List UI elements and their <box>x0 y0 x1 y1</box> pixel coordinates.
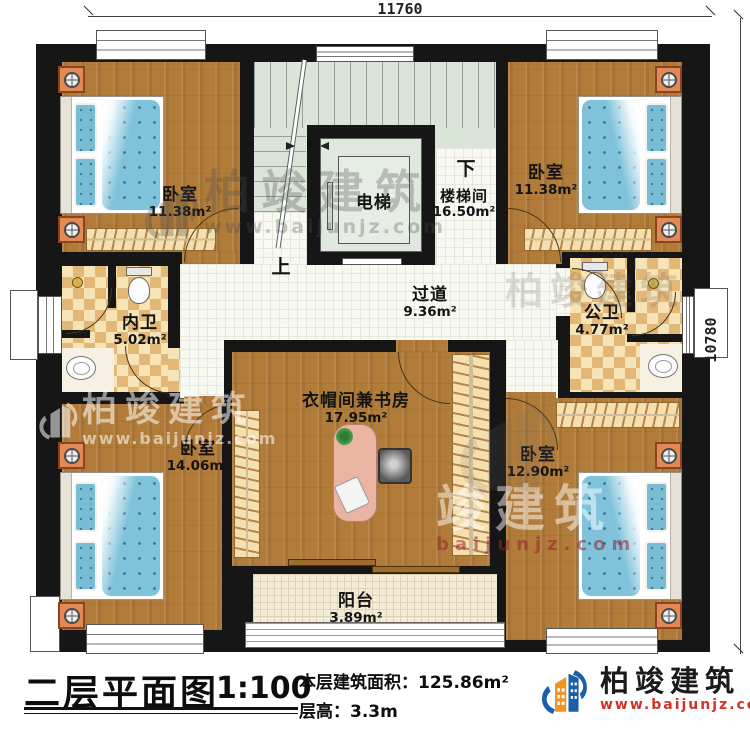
window <box>682 296 694 354</box>
elevator-rail <box>327 182 333 230</box>
pillow <box>74 541 97 591</box>
nightstand <box>655 442 682 469</box>
shower-head-icon <box>648 278 659 289</box>
stair-arrow-icon <box>286 142 295 150</box>
bay-window <box>10 290 38 360</box>
stair-treads <box>254 62 496 128</box>
bed-bottom-left <box>60 472 164 600</box>
floor-area-text: 本层建筑面积：125.86m² <box>299 668 509 693</box>
window <box>86 624 204 654</box>
nightstand <box>655 216 682 243</box>
bed-headboard <box>61 97 72 213</box>
title-underline <box>24 713 298 714</box>
bed-mattress <box>582 476 640 596</box>
room-name: 卧室 <box>167 440 230 459</box>
stair-treads <box>254 128 306 212</box>
floor-height-label: 层高： <box>299 702 350 722</box>
room-name: 衣帽间兼书房 <box>302 392 410 411</box>
nightstand <box>58 602 85 629</box>
room-area: 4.77m² <box>575 323 628 338</box>
desk-chair <box>378 448 412 484</box>
right-dimension-line <box>740 18 741 654</box>
company-logo: 柏竣建筑 www.baijunjz.com <box>536 660 750 722</box>
bed-mattress <box>102 476 160 596</box>
room-name: 卧室 <box>515 164 578 183</box>
room-label-bedroom-br: 卧室 12.90m² <box>507 446 570 480</box>
room-label-balcony: 阳台 3.89m² <box>329 592 382 626</box>
room-label-bath-inner: 内卫 5.02m² <box>113 314 166 348</box>
nightstand <box>58 216 85 243</box>
lamp-icon <box>64 448 80 464</box>
elevator-door <box>342 258 402 265</box>
room-label-bedroom-bl: 卧室 14.06m² <box>167 440 230 474</box>
top-dimension-label: 11760 <box>350 0 450 18</box>
door-opening <box>396 340 448 352</box>
nightstand <box>58 442 85 469</box>
pillow <box>645 157 668 207</box>
room-area: 11.38m² <box>149 205 212 220</box>
room-name: 公卫 <box>575 304 628 323</box>
room-area: 3.89m² <box>329 611 382 626</box>
room-name: 内卫 <box>113 314 166 333</box>
window <box>30 596 60 652</box>
nightstand <box>655 66 682 93</box>
dimension-tick <box>734 644 744 654</box>
room-label-bedroom-tl: 卧室 11.38m² <box>149 186 212 220</box>
toilet-icon <box>126 267 152 304</box>
pillow <box>645 103 668 153</box>
room-area: 5.02m² <box>113 333 166 348</box>
pillow <box>74 482 97 532</box>
floor-height-value: 3.3m <box>350 702 398 722</box>
right-dimension-label: 10780 <box>702 300 722 380</box>
room-name: 过道 <box>403 286 456 305</box>
pillow <box>74 157 97 207</box>
floor-height-text: 层高：3.3m <box>299 697 398 722</box>
plant-icon <box>336 428 353 445</box>
closet <box>234 410 260 558</box>
lamp-icon <box>661 222 677 238</box>
bed-pillows <box>72 473 99 599</box>
company-website: www.baijunjz.com <box>600 696 750 714</box>
floor-area-value: 125.86m² <box>418 673 509 693</box>
hallway-stub-left <box>180 340 224 398</box>
sliding-door <box>372 566 460 573</box>
lamp-icon <box>64 608 80 624</box>
room-name: 卧室 <box>507 446 570 465</box>
bed-headboard <box>670 97 681 213</box>
room-area: 14.06m² <box>167 459 230 474</box>
pillow <box>645 541 668 591</box>
bed-headboard <box>61 473 72 599</box>
pillow <box>74 103 97 153</box>
bed-mattress <box>582 100 640 210</box>
room-label-hallway: 过道 9.36m² <box>403 286 456 320</box>
lamp-icon <box>64 222 80 238</box>
window <box>38 296 62 354</box>
stairs-down-label: 下 <box>456 154 475 181</box>
elevator-car: 电梯 <box>338 156 410 244</box>
title-underline <box>24 707 298 710</box>
company-logo-icon <box>536 660 592 722</box>
room-label-bedroom-tr: 卧室 11.38m² <box>515 164 578 198</box>
bed-top-right <box>578 96 682 214</box>
bed-pillows <box>643 473 670 599</box>
sink-icon <box>648 354 678 378</box>
room-area: 16.50m² <box>433 205 496 220</box>
sliding-door <box>288 559 376 566</box>
stairs-up-label: 上 <box>271 252 290 279</box>
closet <box>452 354 490 556</box>
dimension-tick <box>706 6 716 16</box>
company-name: 柏竣建筑 <box>600 667 750 696</box>
toilet-bowl <box>128 277 150 304</box>
lamp-icon <box>661 608 677 624</box>
room-area: 9.36m² <box>403 305 456 320</box>
sink-icon <box>66 356 96 380</box>
room-name: 楼梯间 <box>433 188 496 205</box>
toilet-tank <box>126 267 152 276</box>
window <box>546 628 658 654</box>
window <box>546 30 658 60</box>
pillow <box>645 482 668 532</box>
bed-pillows <box>643 97 670 213</box>
stair-arrow-icon <box>320 142 329 150</box>
room-area: 17.95m² <box>302 411 410 426</box>
bed-pillows <box>72 97 99 213</box>
bed-bottom-right <box>578 472 682 600</box>
room-label-stairwell: 楼梯间 16.50m² <box>433 188 496 220</box>
door-opening <box>556 268 570 316</box>
nightstand <box>655 602 682 629</box>
lamp-icon <box>661 448 677 464</box>
lamp-icon <box>64 72 80 88</box>
door-opening <box>184 396 224 404</box>
room-label-bath-public: 公卫 4.77m² <box>575 304 628 338</box>
dimension-tick <box>734 10 744 20</box>
lamp-icon <box>661 72 677 88</box>
room-name: 卧室 <box>149 186 212 205</box>
nightstand <box>58 66 85 93</box>
hallway-stub-right <box>506 340 558 398</box>
bed-headboard <box>670 473 681 599</box>
floor-plan-page: 11760 电梯 <box>0 0 750 733</box>
window <box>316 46 414 62</box>
room-area: 12.90m² <box>507 465 570 480</box>
plan-scale: 1:100 <box>216 671 312 706</box>
elevator-label: 电梯 <box>356 188 392 213</box>
room-hallway <box>180 264 556 340</box>
dimension-tick <box>84 6 94 16</box>
shower-head-icon <box>72 277 83 288</box>
room-label-study: 衣帽间兼书房 17.95m² <box>302 392 410 426</box>
window <box>96 30 206 60</box>
room-area: 11.38m² <box>515 183 578 198</box>
wardrobe <box>556 402 680 428</box>
door-opening <box>506 392 556 398</box>
room-name: 阳台 <box>329 592 382 611</box>
floor-area-label: 本层建筑面积： <box>299 673 418 693</box>
